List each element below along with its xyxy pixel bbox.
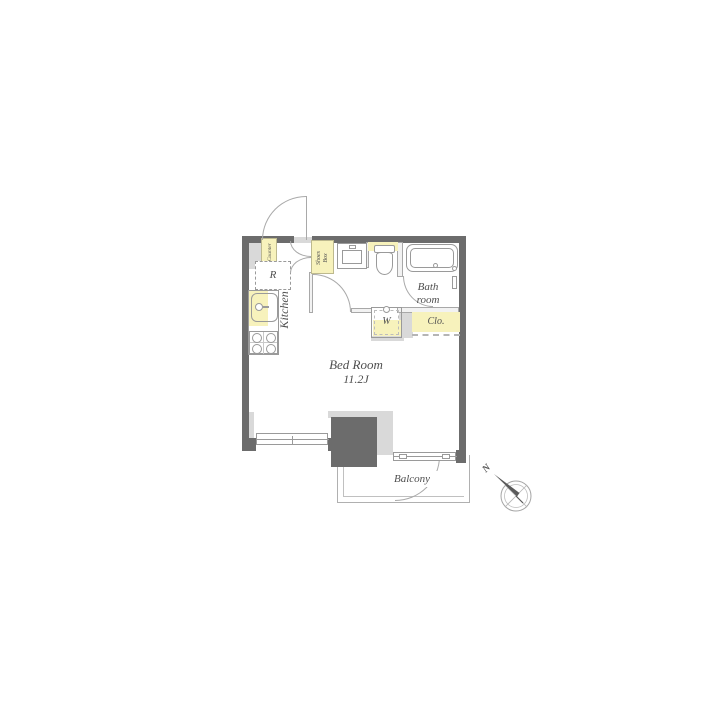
pillar [331, 417, 377, 467]
stove [249, 331, 278, 354]
counter-label-wrap: Counter [254, 244, 286, 260]
window-handle-right [442, 454, 450, 459]
bath-label-line1: Bath [418, 281, 439, 294]
compass: N [482, 460, 542, 520]
washer-faucet [383, 306, 390, 313]
compass-needle-tail [516, 496, 523, 503]
entrance-door-leaf [306, 196, 307, 240]
stove-burner [266, 333, 276, 343]
bedroom-window-left [256, 433, 328, 445]
stove-divider-v [263, 332, 264, 354]
stove-burner [266, 344, 276, 354]
bedroom-door-arc [313, 274, 351, 312]
bath-room-label: Bath room [400, 280, 456, 308]
window-mid-line [257, 439, 329, 440]
bathtub-drain [433, 263, 438, 268]
washbasin-bowl [342, 250, 362, 264]
hall-bottom-wall [351, 308, 372, 313]
washer-label: W [382, 316, 390, 328]
shoes-box-label-1: Shoes [316, 251, 323, 265]
shoes-box: Shoes Box [311, 240, 334, 274]
bottom-wall-right-corner [456, 450, 466, 463]
shoes-box-label-2: Box [323, 253, 330, 262]
bath-label-line2: room [417, 294, 440, 307]
washbasin-faucet [349, 245, 356, 249]
hall-door-arc-bottom [290, 257, 311, 273]
hall-door-arc-top [290, 241, 311, 257]
entrance-door-arc [262, 196, 306, 240]
toilet-bowl [376, 252, 393, 275]
bath-wall-knob [452, 266, 457, 271]
washer-pan: W [371, 307, 402, 338]
counter-label: Counter [267, 243, 273, 261]
bedroom-label: Bed Room 11.2J [306, 355, 406, 389]
bottom-wall-left-corner [242, 438, 256, 451]
kitchen-label: Kitchen [278, 291, 292, 328]
closet: Clo. [412, 312, 460, 332]
floor-plan-canvas: { "colors": { "wall": "#6c6c6c", "light"… [0, 0, 709, 709]
bedroom-size: 11.2J [343, 373, 368, 387]
window-handle-left [399, 454, 407, 459]
washbasin [337, 243, 367, 269]
stove-burner [252, 344, 262, 354]
balcony-label-wrap: Balcony [376, 471, 448, 487]
refrigerator-label: R [270, 269, 277, 282]
compass-needle [494, 474, 520, 497]
sink-faucet-stem [263, 306, 269, 308]
balcony-label: Balcony [394, 473, 430, 486]
stove-burner [252, 333, 262, 343]
bathtub-inner [410, 248, 454, 268]
bedroom-name: Bed Room [329, 358, 383, 373]
closet-sliding-door [412, 334, 460, 336]
washer-label-wrap: W [372, 314, 401, 330]
pillar-ledge-right [377, 417, 393, 455]
balcony-window-right [393, 452, 456, 461]
window-mullion [292, 436, 293, 444]
refrigerator-space: R [255, 261, 291, 290]
bathtub [406, 244, 458, 272]
sink-faucet [255, 303, 263, 311]
closet-label: Clo. [428, 316, 445, 328]
shoes-box-label-wrap: Shoes Box [314, 241, 332, 275]
right-wall [459, 236, 466, 463]
